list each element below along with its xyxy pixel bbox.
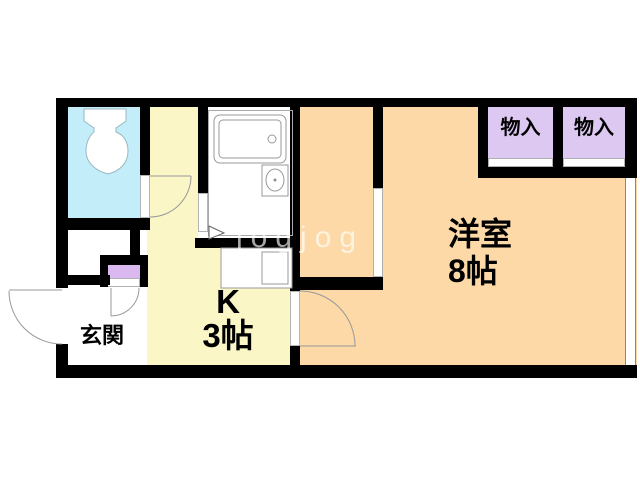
western-room-label: 洋室 <box>448 217 512 251</box>
closet-right-label: 物入 <box>563 111 625 140</box>
entrance-label: 玄関 <box>61 318 143 350</box>
western-room-size: 8帖 <box>448 254 498 288</box>
closet-left-label: 物入 <box>488 111 553 140</box>
bathtub-icon <box>214 115 286 163</box>
room-door-arc <box>300 291 356 346</box>
entrance-door-arc <box>9 290 62 344</box>
floor-plan: jogjog 物入 物入 洋室 8帖 K 3帖 玄関 <box>0 0 640 480</box>
kitchen-size: 3帖 <box>168 319 288 353</box>
toilet-door-arc <box>150 176 191 217</box>
kitchen-label: K <box>168 285 288 319</box>
bathroom-door-icon <box>209 226 224 239</box>
watermark: jogjog <box>236 221 364 255</box>
cabinet-door-arc <box>111 288 139 316</box>
toilet-icon <box>84 109 128 174</box>
washbasin-icon <box>262 165 288 196</box>
